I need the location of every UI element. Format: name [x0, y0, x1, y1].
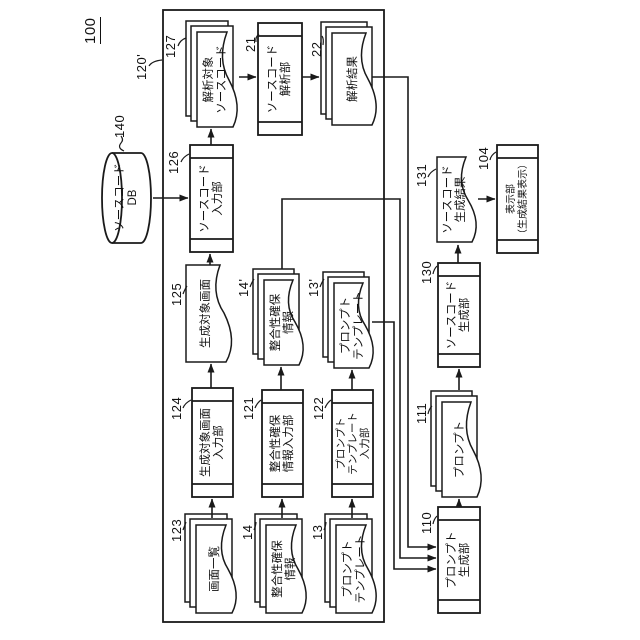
- stack-22-analysis-result: [321, 22, 376, 125]
- leader-120: [149, 60, 162, 66]
- cylinder-140-source-code-db: [102, 153, 151, 243]
- stack-13-prompt-template: [325, 514, 376, 613]
- ref-104: 104: [476, 147, 491, 170]
- ref-21: 21: [243, 37, 258, 52]
- stack-127-analysis-target-source-code: [186, 21, 237, 127]
- stack-14p-consistency-info: [253, 269, 303, 365]
- leader-126: [181, 154, 189, 162]
- leader-140-tilde: [120, 136, 124, 151]
- diagram-shapes: [0, 0, 640, 640]
- ref-110: 110: [419, 512, 434, 534]
- stack-123-screen-list: [185, 514, 236, 613]
- patent-figure: ソースコード DB 画面一覧 生成対象画面 入力部 生成対象画面 ソースコード …: [0, 0, 640, 640]
- leader-131: [428, 169, 436, 177]
- box-110-prompt-generator: [438, 507, 480, 613]
- ref-14: 14: [240, 525, 255, 540]
- box-124-generation-target-screen-input: [192, 388, 233, 497]
- box-121-consistency-info-input: [262, 390, 303, 497]
- box-104-display-unit: [497, 145, 538, 253]
- connector-22-to-110: [372, 77, 436, 547]
- ref-126: 126: [166, 151, 181, 174]
- ref-123: 123: [169, 519, 184, 542]
- ref-130: 130: [419, 261, 434, 284]
- box-21-source-code-analyzer: [258, 23, 302, 135]
- ref-13p: 13': [306, 279, 321, 297]
- doc-131-source-code-generation-result: [437, 157, 476, 242]
- ref-121: 121: [241, 397, 256, 420]
- rotated-diagram-scene: ソースコード DB 画面一覧 生成対象画面 入力部 生成対象画面 ソースコード …: [0, 0, 640, 640]
- box-122-prompt-template-input: [332, 390, 373, 497]
- ref-22: 22: [309, 42, 324, 57]
- ref-14p: 14': [236, 279, 251, 297]
- stack-13p-prompt-template: [323, 272, 373, 368]
- doc-125-generation-target-screen: [186, 265, 232, 362]
- leader-124: [183, 400, 191, 408]
- ref-122: 122: [311, 397, 326, 420]
- ref-13: 13: [310, 525, 325, 540]
- ref-131: 131: [414, 164, 429, 187]
- ref-111: 111: [414, 403, 429, 424]
- ref-127: 127: [163, 35, 178, 58]
- box-126-source-code-input: [190, 145, 233, 252]
- connector-14p-to-110: [282, 199, 436, 558]
- ref-120: 120': [134, 54, 149, 80]
- stack-14-consistency-info: [255, 514, 306, 613]
- stack-111-prompt: [431, 391, 481, 497]
- leader-127: [178, 38, 186, 46]
- figure-number: 100: [82, 17, 101, 44]
- ref-124: 124: [169, 397, 184, 420]
- ref-125: 125: [169, 283, 184, 306]
- ref-140: 140: [112, 115, 127, 138]
- box-130-source-code-generator: [438, 263, 480, 367]
